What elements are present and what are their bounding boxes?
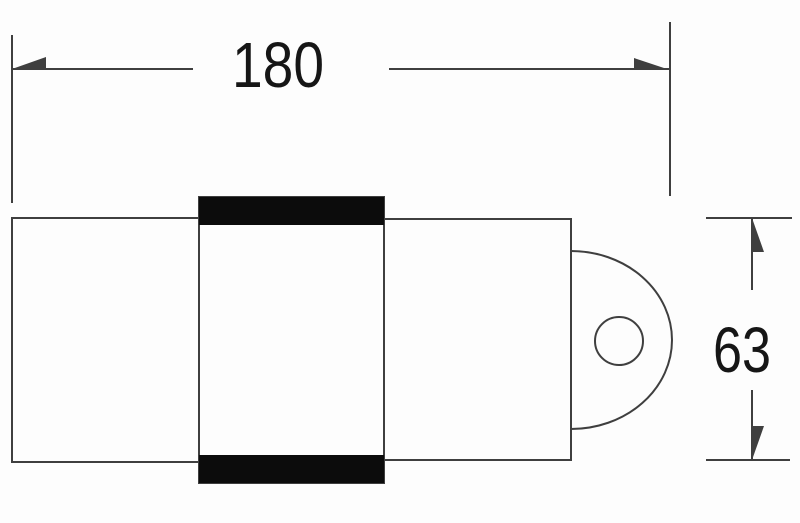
mounting-hole [595, 317, 643, 365]
top-black-band [199, 197, 384, 225]
height-dimension-label: 63 [713, 314, 771, 386]
center-block-outline [199, 197, 384, 483]
width-arrowhead-left [12, 57, 46, 69]
bottom-black-band [199, 455, 384, 483]
height-arrowhead-top [752, 218, 764, 252]
width-dimension-label: 180 [232, 29, 324, 101]
width-dimension-group [12, 22, 670, 203]
technical-drawing-canvas: 180 63 [0, 0, 800, 523]
width-arrowhead-right [634, 58, 670, 70]
height-arrowhead-bottom [752, 426, 764, 460]
left-body-section [12, 218, 199, 462]
right-body-section [384, 219, 571, 460]
object-outline-group [12, 197, 672, 483]
mounting-tab-arc [571, 251, 672, 429]
dimension-drawing-svg: 180 63 [0, 0, 800, 523]
